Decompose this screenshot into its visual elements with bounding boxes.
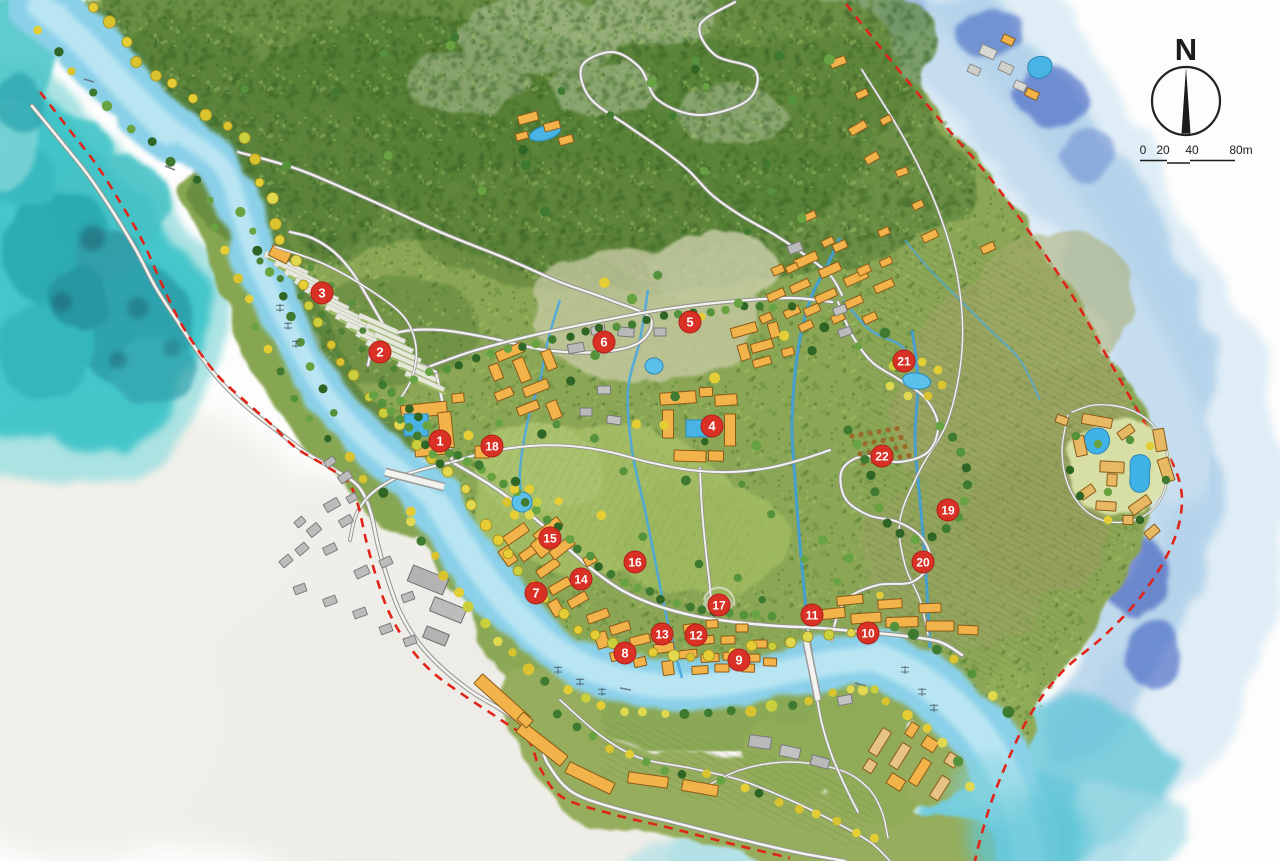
svg-text:21: 21 <box>897 354 911 368</box>
svg-text:0: 0 <box>1140 143 1147 157</box>
svg-text:N: N <box>1175 32 1197 67</box>
svg-text:2: 2 <box>376 345 383 360</box>
svg-text:80m: 80m <box>1229 143 1252 157</box>
svg-text:16: 16 <box>628 555 642 569</box>
svg-text:18: 18 <box>485 439 499 453</box>
svg-text:4: 4 <box>708 419 716 434</box>
svg-text:20: 20 <box>1156 143 1170 157</box>
svg-text:10: 10 <box>861 626 875 640</box>
svg-text:12: 12 <box>689 628 703 642</box>
svg-text:7: 7 <box>532 586 539 601</box>
svg-text:13: 13 <box>655 627 669 641</box>
svg-text:6: 6 <box>600 335 607 350</box>
svg-text:9: 9 <box>735 653 742 668</box>
svg-text:19: 19 <box>941 503 955 517</box>
svg-text:1: 1 <box>436 434 443 449</box>
svg-text:22: 22 <box>875 449 889 463</box>
svg-text:3: 3 <box>318 286 325 301</box>
svg-text:14: 14 <box>574 572 588 586</box>
svg-text:15: 15 <box>543 531 557 545</box>
svg-text:8: 8 <box>621 646 628 661</box>
svg-text:17: 17 <box>712 598 726 612</box>
svg-text:5: 5 <box>686 315 693 330</box>
svg-text:11: 11 <box>806 608 819 622</box>
svg-text:20: 20 <box>916 555 930 569</box>
svg-text:40: 40 <box>1185 143 1199 157</box>
